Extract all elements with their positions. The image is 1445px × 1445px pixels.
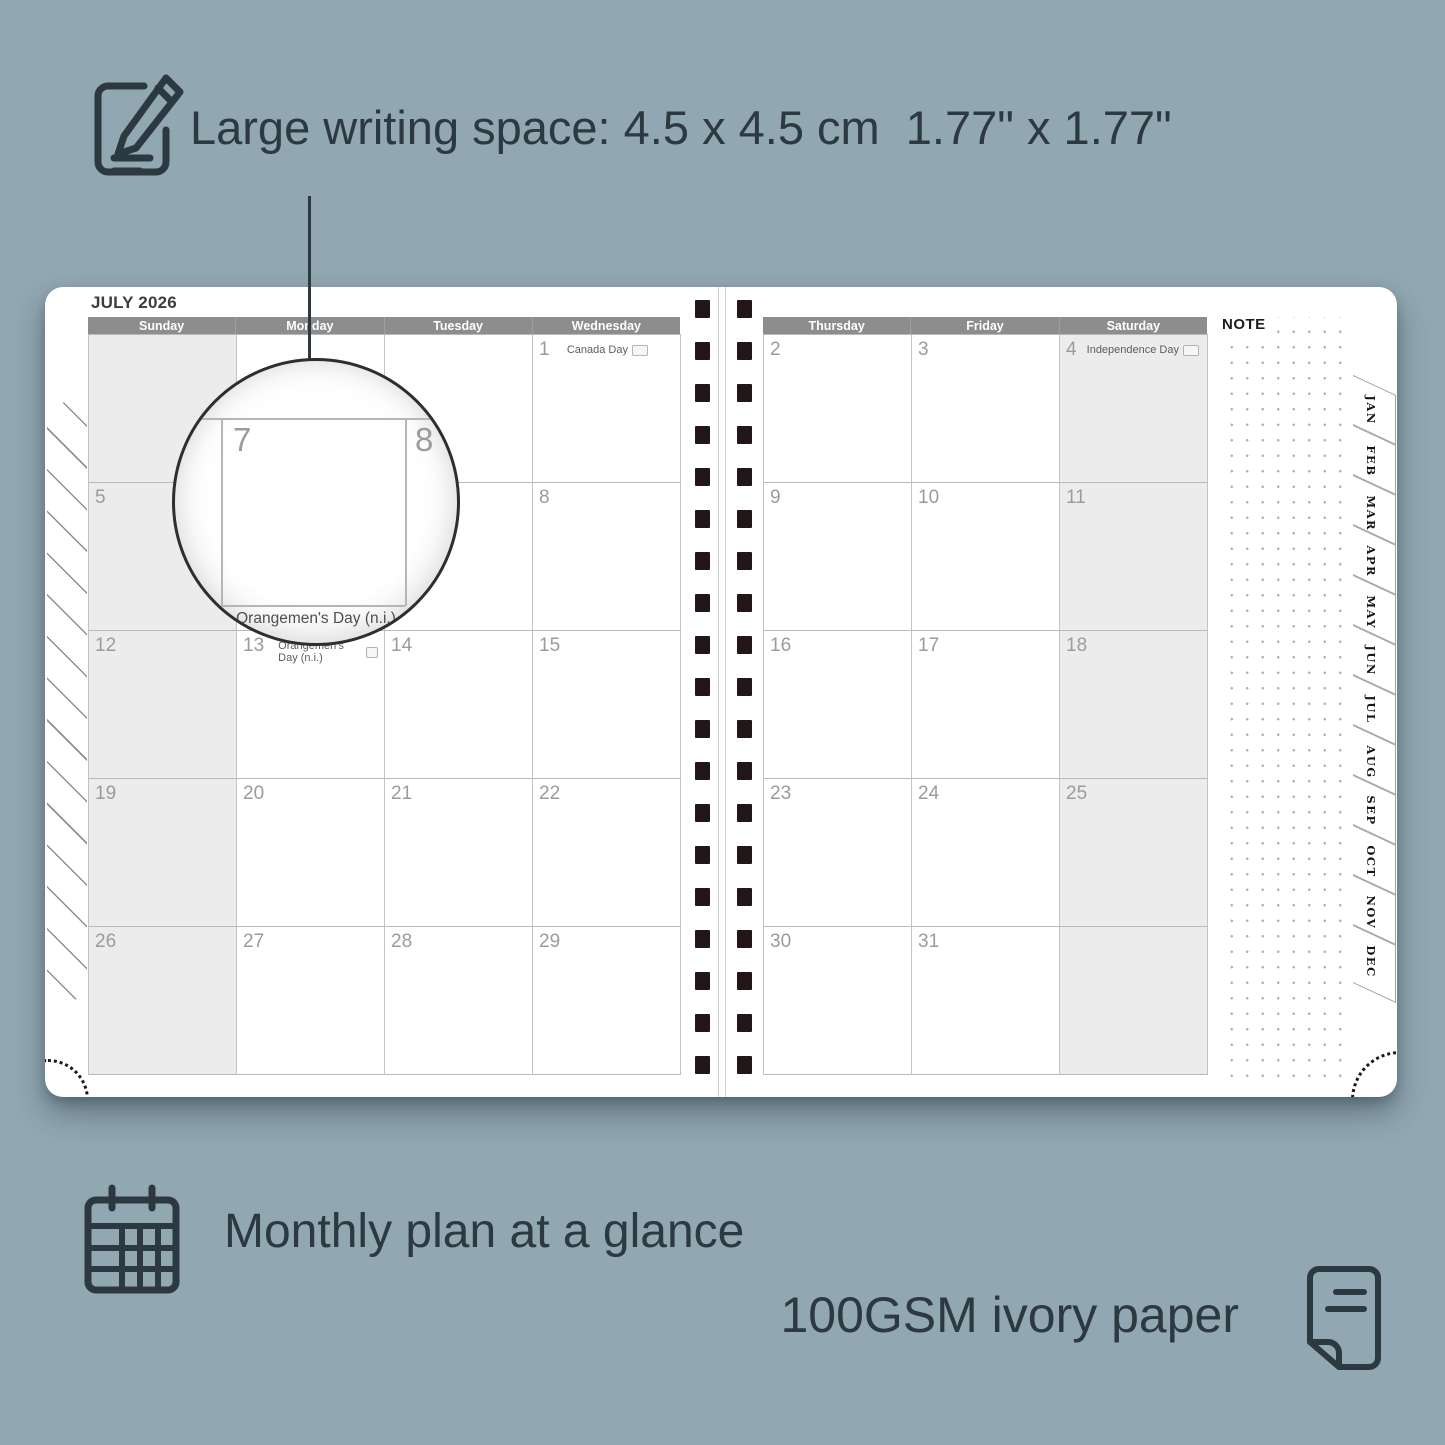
day-number: 3 [918, 339, 929, 362]
binding-hole [737, 888, 752, 906]
binding-hole [695, 426, 710, 444]
month-tab-label: MAY [1364, 595, 1378, 629]
day-number: 18 [1066, 635, 1087, 658]
page-gutter-line [725, 287, 726, 1097]
month-title: JULY 2026 [91, 293, 177, 313]
binding-hole [695, 300, 710, 318]
binding-hole [737, 384, 752, 402]
calendar-cell: 10 [912, 483, 1060, 631]
monthly-annotation-text: Monthly plan at a glance [224, 1204, 744, 1259]
paper-annotation-text: 100GSM ivory paper [780, 1286, 1239, 1344]
day-header-cell: Wednesday [532, 317, 680, 334]
month-tab-label: NOV [1364, 895, 1378, 929]
note-label: NOTE [1222, 316, 1272, 335]
day-number: 29 [539, 931, 560, 954]
binding-holes-right [737, 300, 752, 1098]
calendar-cell: 3 [912, 335, 1060, 483]
calendar-week-row: 3031 [764, 927, 1208, 1075]
note-dot-grid [1219, 317, 1353, 1087]
calendar-week-row: 161718 [764, 631, 1208, 779]
right-page-day-headers: ThursdayFridaySaturday [763, 317, 1207, 334]
binding-hole [695, 384, 710, 402]
binding-hole [737, 762, 752, 780]
day-header-cell: Sunday [88, 317, 235, 334]
paper-sheet-icon [1296, 1264, 1382, 1372]
month-tab-label: APR [1364, 545, 1378, 577]
calendar-cell: 30 [764, 927, 912, 1075]
month-tab-label: DEC [1364, 945, 1378, 977]
flag-icon [632, 345, 648, 356]
corner-perforation-dots-right [1351, 1051, 1397, 1097]
calendar-cell: 18 [1060, 631, 1208, 779]
calendar-cell: 29 [533, 927, 681, 1075]
calendar-cell: 20 [237, 779, 385, 927]
day-number: 9 [770, 487, 781, 510]
calendar-cell: 24 [912, 779, 1060, 927]
calendar-cell [1060, 927, 1208, 1075]
calendar-cell: 9 [764, 483, 912, 631]
magnified-grid-line [175, 418, 457, 420]
binding-hole [695, 720, 710, 738]
day-number: 30 [770, 931, 791, 954]
day-number: 21 [391, 783, 412, 806]
binding-hole [737, 846, 752, 864]
magnifier-circle: 7 8 Orangemen's Day (n.i.) [172, 358, 460, 646]
binding-hole [695, 594, 710, 612]
calendar-grid-icon [80, 1184, 184, 1296]
day-number: 23 [770, 783, 791, 806]
binding-hole [695, 468, 710, 486]
binding-hole [695, 888, 710, 906]
magnified-grid-line [405, 418, 407, 606]
binding-hole [695, 636, 710, 654]
month-tab-label: AUG [1364, 745, 1378, 778]
flag-icon [366, 647, 378, 658]
calendar-cell: 21 [385, 779, 533, 927]
day-number: 19 [95, 783, 116, 806]
binding-hole [695, 1014, 710, 1032]
month-tab-label: FEB [1364, 445, 1378, 476]
holiday-entry: Canada Day [567, 344, 648, 356]
day-number: 20 [243, 783, 264, 806]
calendar-cell: 4Independence Day [1060, 335, 1208, 483]
day-number: 8 [539, 487, 550, 510]
month-tab-label: OCT [1364, 845, 1378, 877]
binding-hole [737, 678, 752, 696]
flag-icon [1183, 345, 1199, 356]
binding-hole [695, 804, 710, 822]
calendar-cell: 25 [1060, 779, 1208, 927]
pointer-line [308, 196, 311, 372]
day-number: 25 [1066, 783, 1087, 806]
magnified-day-number: 8 [415, 421, 433, 459]
binding-hole [695, 972, 710, 990]
calendar-week-row: 234Independence Day [764, 335, 1208, 483]
binding-hole [695, 1056, 710, 1074]
calendar-cell: 14 [385, 631, 533, 779]
left-page-day-headers: SundayMondayTuesdayWednesday [88, 317, 680, 334]
day-number: 31 [918, 931, 939, 954]
calendar-cell: 1Canada Day [533, 335, 681, 483]
day-number: 22 [539, 783, 560, 806]
day-number: 15 [539, 635, 560, 658]
day-header-cell: Thursday [763, 317, 910, 334]
day-header-cell: Tuesday [384, 317, 532, 334]
magnified-grid-line [221, 418, 223, 606]
binding-hole [695, 342, 710, 360]
binding-hole [737, 510, 752, 528]
magnified-day-number: 7 [233, 421, 251, 459]
calendar-cell: 15 [533, 631, 681, 779]
day-number: 28 [391, 931, 412, 954]
calendar-cell: 8 [533, 483, 681, 631]
binding-hole [737, 930, 752, 948]
holiday-label: Canada Day [567, 344, 628, 356]
day-number: 26 [95, 931, 116, 954]
calendar-cell: 17 [912, 631, 1060, 779]
month-tab-label: SEP [1364, 795, 1378, 825]
binding-hole [695, 846, 710, 864]
day-number: 17 [918, 635, 939, 658]
day-number: 10 [918, 487, 939, 510]
binding-hole [737, 636, 752, 654]
calendar-cell: 2 [764, 335, 912, 483]
page-edge-hatching [47, 393, 87, 1011]
holiday-entry: Independence Day [1087, 344, 1199, 356]
month-tab-index: JANFEBMARAPRMAYJUNJULAUGSEPOCTNOVDEC [1353, 375, 1397, 1035]
day-number: 16 [770, 635, 791, 658]
binding-hole [695, 510, 710, 528]
day-header-cell: Saturday [1059, 317, 1207, 334]
calendar-cell: 26 [89, 927, 237, 1075]
binding-hole [737, 594, 752, 612]
binding-hole [737, 342, 752, 360]
calendar-cell: 23 [764, 779, 912, 927]
month-tab-label: JUL [1364, 695, 1378, 723]
day-header-cell: Friday [910, 317, 1058, 334]
calendar-week-row: 19202122 [89, 779, 681, 927]
binding-hole [737, 426, 752, 444]
binding-hole [695, 930, 710, 948]
binding-holes-left [695, 300, 710, 1098]
calendar-week-row: 91011 [764, 483, 1208, 631]
calendar-week-row: 232425 [764, 779, 1208, 927]
calendar-week-row: 26272829 [89, 927, 681, 1075]
day-number: 5 [95, 487, 106, 510]
day-number: 1 [539, 339, 550, 362]
day-number: 4 [1066, 339, 1077, 362]
calendar-week-row: 1213Orangemen's Day (n.i.)1415 [89, 631, 681, 779]
day-number: 2 [770, 339, 781, 362]
corner-perforation-dots-left [45, 1059, 89, 1097]
calendar-cell: 16 [764, 631, 912, 779]
page-gutter-line [718, 287, 719, 1097]
binding-hole [737, 300, 752, 318]
day-number: 27 [243, 931, 264, 954]
month-tab-label: MAR [1364, 495, 1378, 531]
binding-hole [737, 720, 752, 738]
binding-hole [737, 972, 752, 990]
day-number: 11 [1066, 487, 1086, 510]
binding-hole [695, 552, 710, 570]
binding-hole [737, 468, 752, 486]
month-tab-label: JAN [1364, 395, 1378, 424]
calendar-cell: 13Orangemen's Day (n.i.) [237, 631, 385, 779]
binding-hole [737, 804, 752, 822]
binding-hole [737, 1014, 752, 1032]
calendar-cell: 28 [385, 927, 533, 1075]
day-number: 13 [243, 635, 264, 658]
calendar-cell: 12 [89, 631, 237, 779]
magnified-grid-line [221, 605, 405, 607]
binding-hole [695, 762, 710, 780]
day-number: 12 [95, 635, 116, 658]
pencil-note-icon [84, 72, 186, 186]
day-number: 14 [391, 635, 412, 658]
binding-hole [695, 678, 710, 696]
binding-hole [737, 552, 752, 570]
calendar-cell: 31 [912, 927, 1060, 1075]
calendar-cell: 27 [237, 927, 385, 1075]
holiday-label: Independence Day [1087, 344, 1179, 356]
right-page-calendar-grid: 234Independence Day910111617182324253031 [763, 334, 1208, 1075]
calendar-cell: 19 [89, 779, 237, 927]
day-number: 24 [918, 783, 939, 806]
top-annotation-text: Large writing space: 4.5 x 4.5 cm 1.77" … [190, 100, 1172, 155]
magnified-holiday-label: Orangemen's Day (n.i.) [175, 610, 457, 628]
calendar-cell: 22 [533, 779, 681, 927]
month-tab-label: JUN [1364, 645, 1378, 675]
calendar-cell: 11 [1060, 483, 1208, 631]
binding-hole [737, 1056, 752, 1074]
